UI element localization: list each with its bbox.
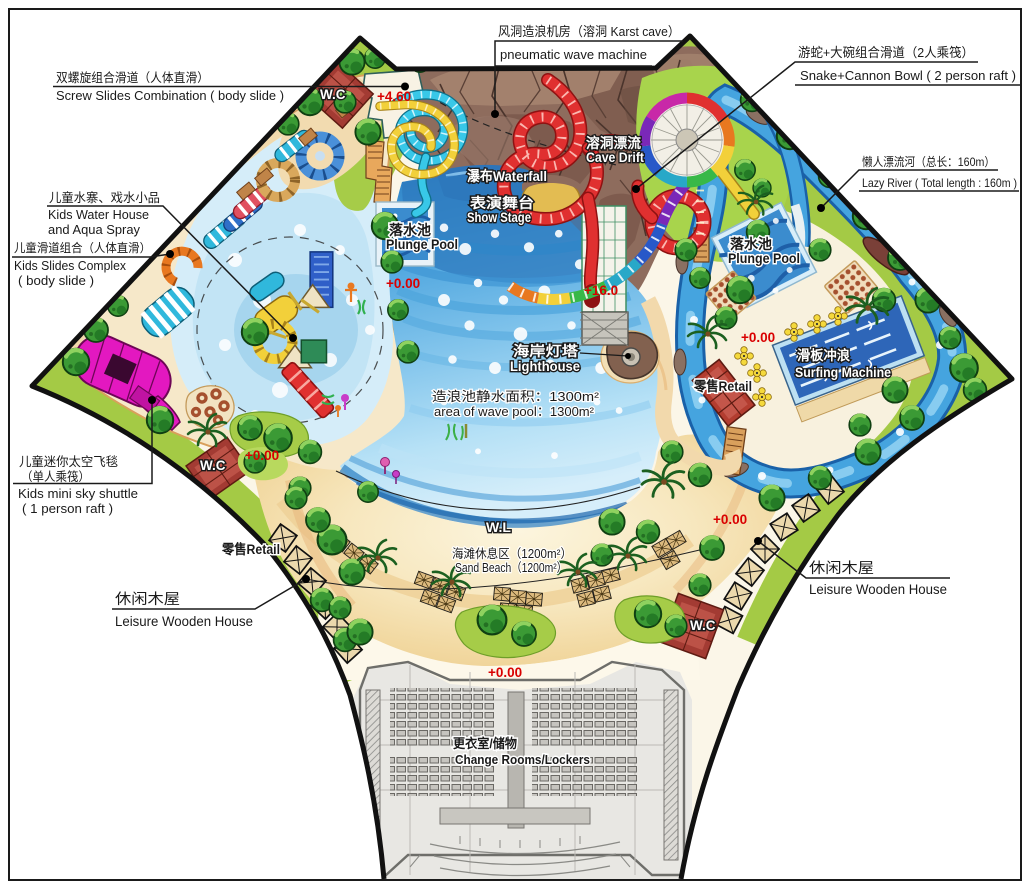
svg-text:海滩休息区（1200m²）: 海滩休息区（1200m²）: [452, 546, 572, 561]
svg-text:Kids mini sky shuttle: Kids mini sky shuttle: [18, 487, 138, 501]
svg-text:滑板冲浪: 滑板冲浪: [797, 347, 850, 363]
svg-text:Leisure Wooden House: Leisure Wooden House: [809, 582, 947, 597]
svg-text:儿童迷你太空飞毯: 儿童迷你太空飞毯: [19, 454, 118, 469]
svg-text:+0.00: +0.00: [245, 448, 279, 463]
svg-text:Lazy River ( Total length : 16: Lazy River ( Total length : 160m ): [862, 176, 1017, 190]
svg-text:更衣室/储物: 更衣室/储物: [453, 736, 517, 751]
svg-text:pneumatic wave machine: pneumatic wave machine: [500, 47, 647, 62]
svg-text:W.L: W.L: [486, 519, 511, 535]
svg-text:and Aqua Spray: and Aqua Spray: [48, 222, 140, 237]
svg-text:Screw Slides Combination ( bod: Screw Slides Combination ( body slide ): [56, 88, 284, 103]
svg-text:双螺旋组合滑道（人体直滑）: 双螺旋组合滑道（人体直滑）: [56, 70, 209, 85]
svg-text:Surfing Machine: Surfing Machine: [795, 365, 891, 380]
svg-text:Leisure Wooden House: Leisure Wooden House: [115, 614, 253, 629]
svg-text:游蛇+大碗组合滑道（2人乘筏）: 游蛇+大碗组合滑道（2人乘筏）: [798, 45, 974, 60]
svg-text:瀑布Waterfall: 瀑布Waterfall: [467, 168, 547, 184]
svg-text:休闲木屋: 休闲木屋: [809, 560, 874, 577]
svg-text:Sand Beach（1200m²）: Sand Beach（1200m²）: [455, 561, 567, 575]
svg-text:+4.60: +4.60: [377, 89, 411, 104]
svg-text:+0.00: +0.00: [713, 512, 747, 527]
svg-text:零售Retail: 零售Retail: [693, 378, 752, 394]
svg-text:Kids Water House: Kids Water House: [48, 207, 149, 222]
svg-text:Lighthouse: Lighthouse: [510, 358, 580, 374]
svg-text:W.C: W.C: [200, 458, 226, 473]
svg-text:儿童水寨、戏水小品: 儿童水寨、戏水小品: [49, 190, 160, 205]
svg-text:Cave Drift: Cave Drift: [586, 149, 644, 165]
svg-text:Kids Slides Complex: Kids Slides Complex: [14, 259, 127, 273]
svg-text:休闲木屋: 休闲木屋: [115, 591, 180, 608]
svg-text:零售Retail: 零售Retail: [221, 541, 280, 557]
svg-text:造浪池静水面积：1300m²: 造浪池静水面积：1300m²: [432, 389, 600, 404]
svg-text:懒人漂流河（总长：160m）: 懒人漂流河（总长：160m）: [862, 155, 995, 169]
svg-text:儿童滑道组合（人体直滑）: 儿童滑道组合（人体直滑）: [14, 240, 151, 255]
svg-text:Snake+Cannon Bowl ( 2 person r: Snake+Cannon Bowl ( 2 person raft ): [800, 68, 1016, 83]
svg-text:Change Rooms/Lockers: Change Rooms/Lockers: [455, 752, 590, 767]
svg-text:area of wave pool：1300m²: area of wave pool：1300m²: [434, 404, 595, 419]
svg-text:W.C: W.C: [690, 618, 716, 633]
svg-text:( body slide ): ( body slide ): [18, 274, 94, 288]
svg-text:+0.00: +0.00: [741, 330, 775, 345]
svg-text:Show Stage: Show Stage: [467, 209, 531, 225]
svg-text:Plunge Pool: Plunge Pool: [728, 250, 800, 266]
svg-text:Plunge Pool: Plunge Pool: [386, 236, 458, 252]
svg-text:+0.00: +0.00: [386, 276, 420, 291]
svg-text:+0.00: +0.00: [488, 665, 522, 680]
svg-text:海岸灯塔: 海岸灯塔: [513, 343, 579, 359]
svg-text:( 1 person raft ): ( 1 person raft ): [22, 502, 113, 516]
svg-text:风洞造浪机房（溶洞 Karst cave）: 风洞造浪机房（溶洞 Karst cave）: [498, 24, 680, 39]
svg-text:（单人乘筏）: （单人乘筏）: [21, 469, 90, 484]
svg-text:+16.0: +16.0: [584, 283, 618, 298]
svg-text:W.C: W.C: [320, 87, 346, 102]
